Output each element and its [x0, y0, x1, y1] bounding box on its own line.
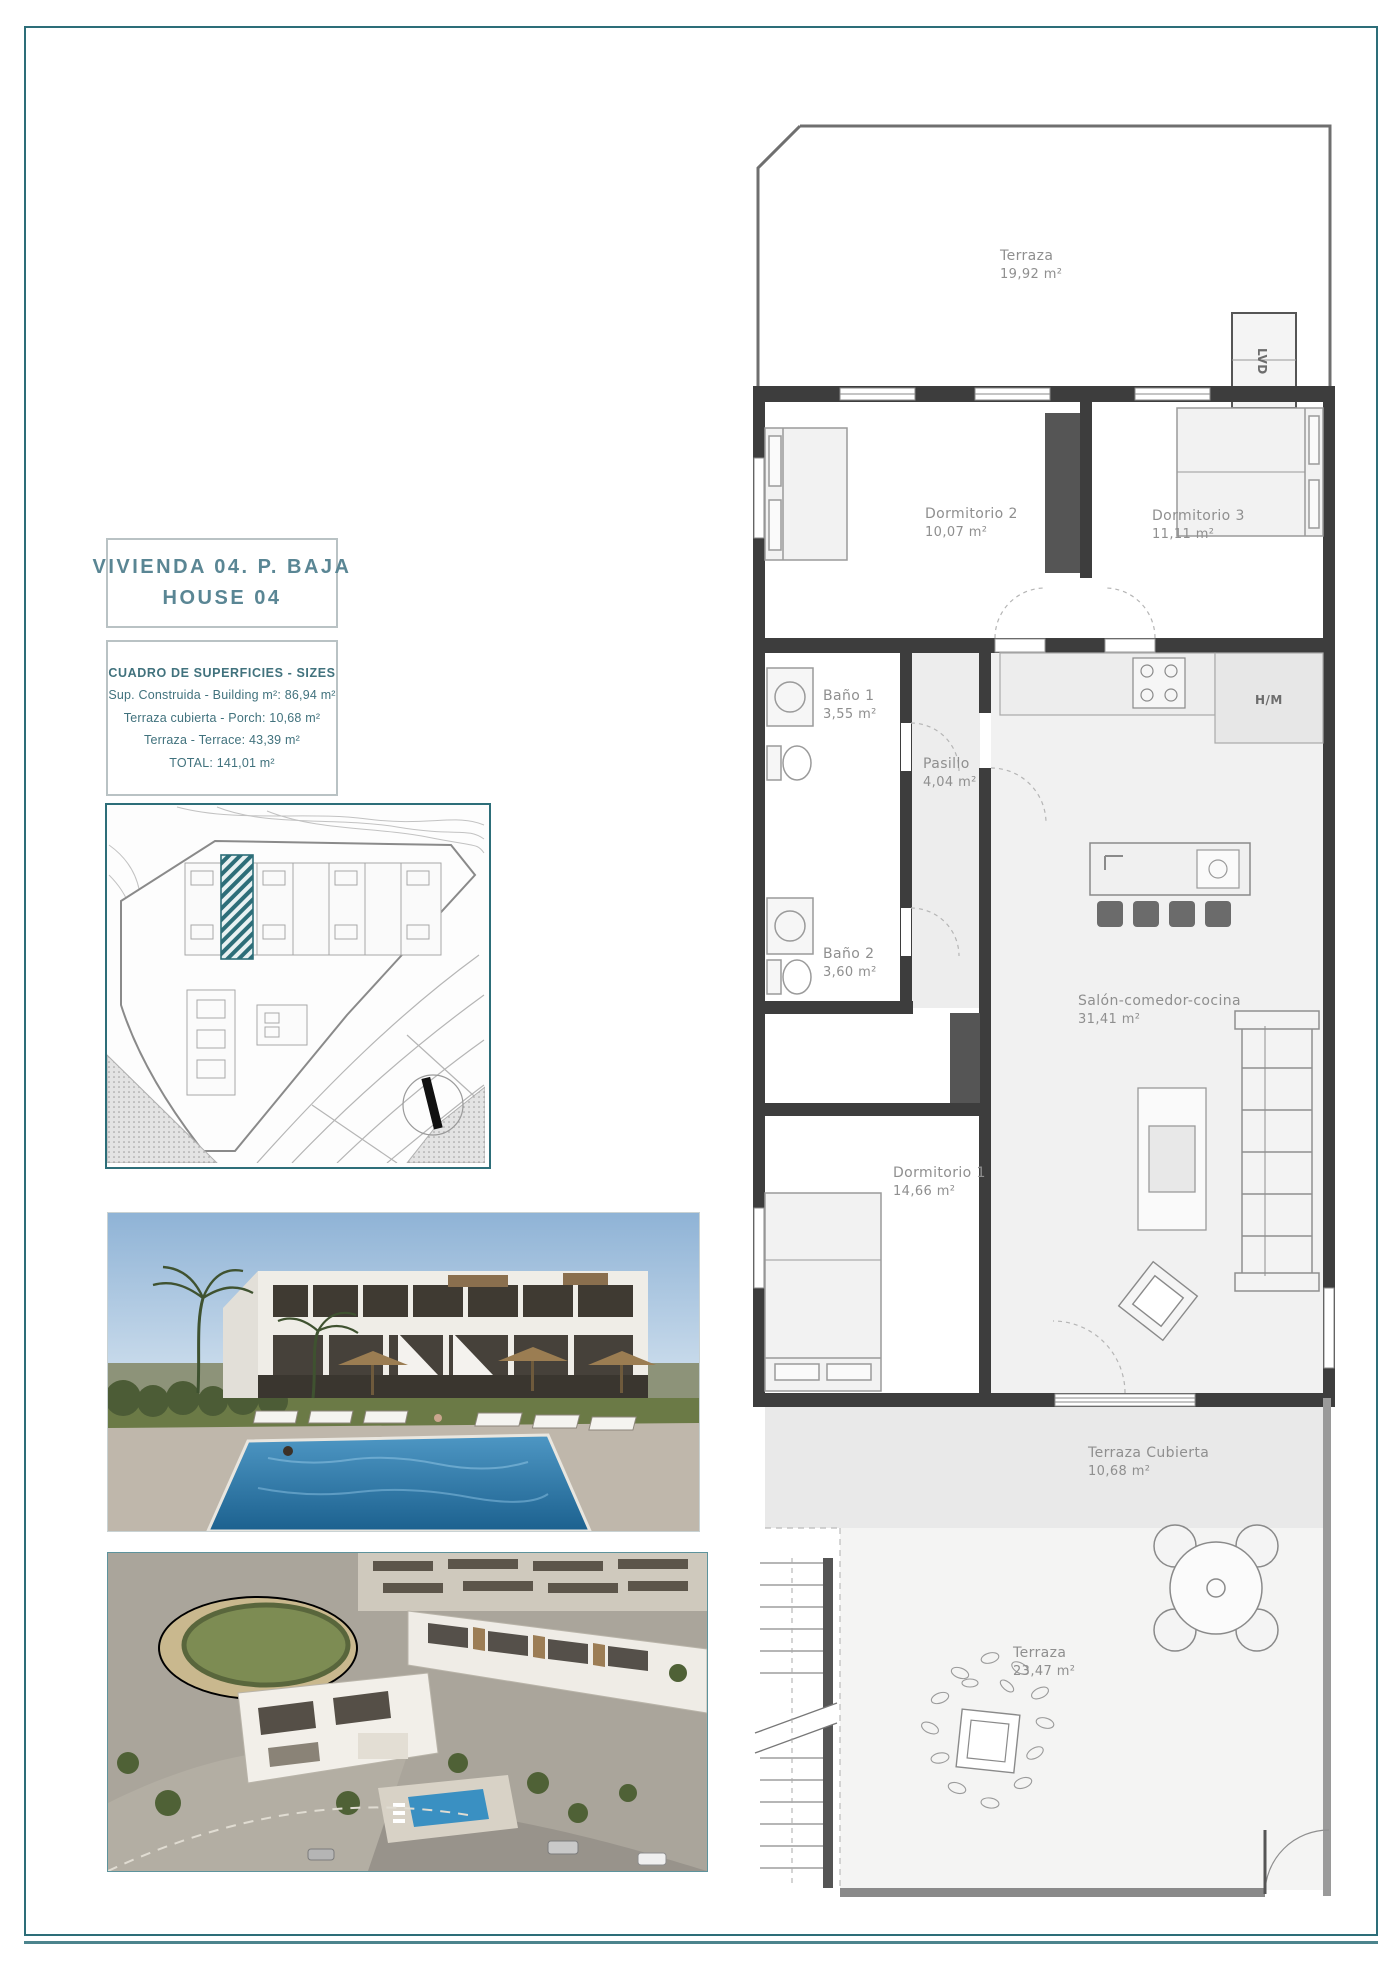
pool — [208, 1435, 590, 1531]
outdoor-table-set — [1154, 1525, 1278, 1651]
building — [223, 1271, 648, 1398]
covered-terrace-name: Terraza Cubierta — [1087, 1445, 1209, 1461]
laundry-label: LVD — [1255, 348, 1269, 375]
highlighted-unit — [221, 855, 253, 959]
coffee-table — [1138, 1088, 1206, 1230]
floor-plan-drawing: LVD — [745, 108, 1345, 1932]
bedroom3-area: 11,11 m² — [1152, 527, 1214, 542]
tall-units-label: H/M — [1255, 693, 1283, 707]
aerial-render-photo — [107, 1552, 708, 1872]
terrace-bottom-area: 23,47 m² — [1013, 1664, 1075, 1679]
facade-wall-top — [753, 386, 1335, 402]
bedroom2-name: Dormitorio 2 — [925, 506, 1018, 522]
title-box: VIVIENDA 04. P. BAJA HOUSE 04 — [106, 538, 338, 628]
floor-plan: LVD — [745, 108, 1345, 1932]
bed-bedroom1 — [765, 1193, 881, 1391]
bath1-fixtures — [767, 668, 813, 780]
terrace-top-name: Terraza — [999, 248, 1053, 264]
terrace-bottom-name: Terraza — [1012, 1645, 1066, 1661]
bedroom3-name: Dormitorio 3 — [1152, 508, 1245, 524]
covered-terrace-area: 10,68 m² — [1088, 1464, 1150, 1479]
sofa — [1235, 1011, 1319, 1291]
sizes-total: TOTAL: 141,01 m² — [169, 752, 275, 775]
bedroom1-name: Dormitorio 1 — [893, 1165, 986, 1181]
sizes-title: CUADRO DE SUPERFICIES - SIZES — [108, 662, 335, 685]
pool-render-drawing — [108, 1213, 699, 1531]
site-plan — [105, 803, 491, 1169]
hall-name: Pasillo — [923, 756, 970, 772]
bath1-name: Baño 1 — [823, 688, 874, 704]
plan-sheet-page: VIVIENDA 04. P. BAJA HOUSE 04 CUADRO DE … — [0, 0, 1400, 1980]
sizes-terrace: Terraza - Terrace: 43,39 m² — [144, 729, 300, 752]
bath2-fixtures — [767, 898, 813, 994]
bedroom2-area: 10,07 m² — [925, 525, 987, 540]
sizes-built: Sup. Construida - Building m²: 86,94 m² — [108, 684, 335, 707]
terrace-wall — [753, 1393, 1335, 1407]
living-area: 31,41 m² — [1078, 1012, 1140, 1027]
aerial-render-drawing — [108, 1553, 707, 1871]
bed-bedroom2 — [765, 428, 847, 560]
page-title: VIVIENDA 04. P. BAJA — [93, 552, 352, 583]
living-name: Salón-comedor-cocina — [1078, 993, 1241, 1009]
bath2-name: Baño 2 — [823, 946, 874, 962]
sizes-table: CUADRO DE SUPERFICIES - SIZES Sup. Const… — [106, 640, 338, 796]
bath2-area: 3,60 m² — [823, 965, 877, 980]
page-subtitle: HOUSE 04 — [163, 583, 282, 614]
site-plan-drawing — [107, 805, 485, 1163]
person — [434, 1414, 442, 1422]
terrace-top-area: 19,92 m² — [1000, 267, 1062, 282]
hall-area: 4,04 m² — [923, 775, 977, 790]
distant-apartments — [358, 1553, 707, 1611]
bedroom1-area: 14,66 m² — [893, 1184, 955, 1199]
pool-render-photo — [107, 1212, 700, 1532]
sizes-porch: Terraza cubierta - Porch: 10,68 m² — [124, 707, 320, 730]
bath1-area: 3,55 m² — [823, 707, 877, 722]
staircase — [755, 1558, 837, 1888]
page-border-bottom-rule — [24, 1941, 1378, 1944]
